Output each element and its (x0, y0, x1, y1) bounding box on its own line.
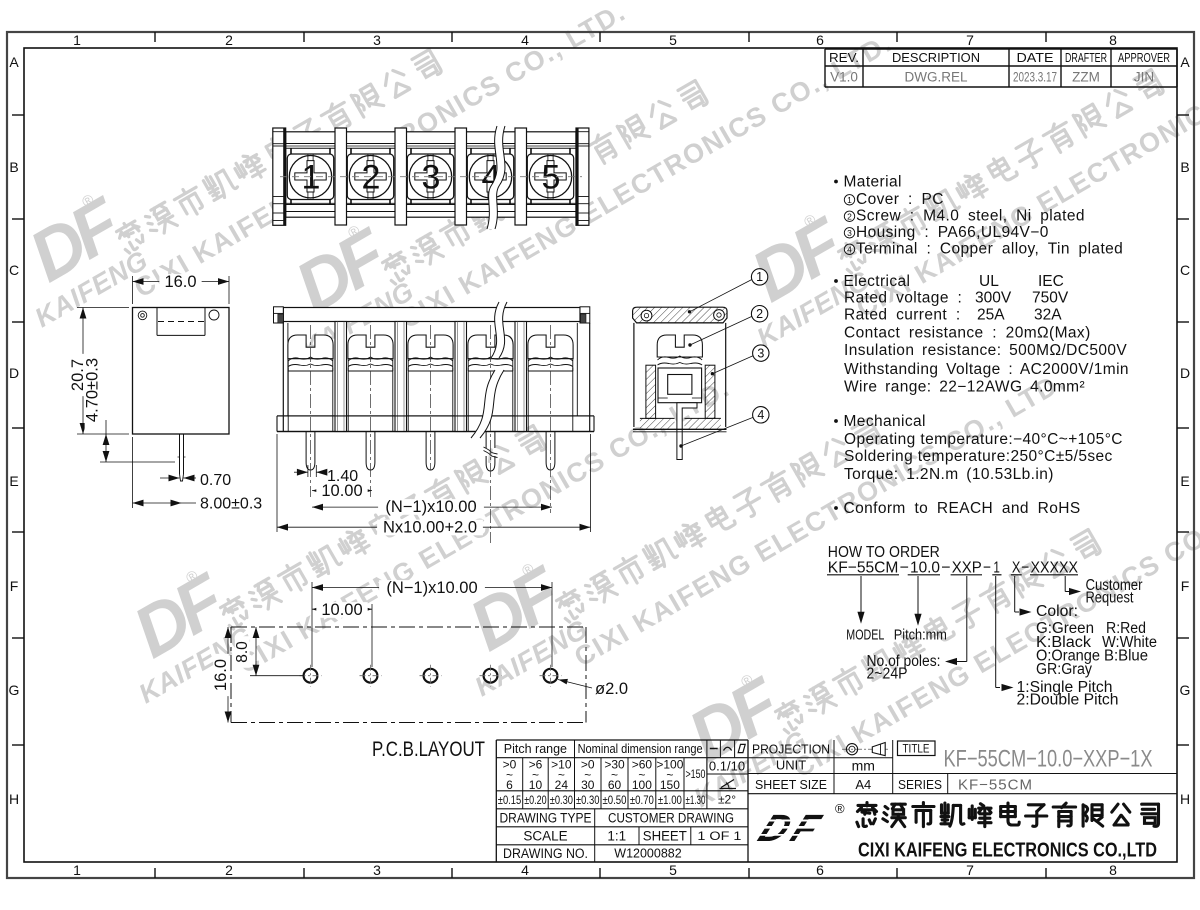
svg-text:Torque: 1.2N.m (10.53Lb.in): Torque: 1.2N.m (10.53Lb.in) (844, 466, 1054, 483)
svg-text:6: 6 (816, 862, 824, 878)
svg-text:KF−55CM−10.0−XXP−1X: KF−55CM−10.0−XXP−1X (944, 746, 1153, 773)
svg-text:Contact resistance : 20mΩ(Max): Contact resistance : 20mΩ(Max) (844, 325, 1091, 342)
svg-text:A: A (1180, 54, 1190, 70)
svg-text:Rated current :: Rated current : (844, 307, 961, 324)
svg-text:5: 5 (542, 159, 561, 197)
svg-text:IEC: IEC (1038, 273, 1064, 290)
svg-text:16.0: 16.0 (164, 273, 196, 291)
svg-text:2~24P: 2~24P (867, 666, 908, 683)
svg-text:10.00: 10.00 (321, 482, 362, 500)
svg-text:Soldering temperature:250°C±5/: Soldering temperature:250°C±5/5sec (844, 448, 1113, 465)
svg-text:3: 3 (847, 228, 852, 238)
svg-text:G: G (1180, 682, 1191, 698)
svg-text:3: 3 (422, 159, 441, 197)
svg-text:4: 4 (847, 245, 852, 255)
svg-text:B:Blue: B:Blue (1104, 648, 1148, 665)
svg-text:5: 5 (669, 862, 677, 878)
svg-text:DWG.REL: DWG.REL (904, 70, 967, 85)
svg-text:4.70±0.3: 4.70±0.3 (84, 358, 102, 422)
svg-text:Electrical: Electrical (844, 273, 911, 290)
svg-text:(N−1)x10.00: (N−1)x10.00 (385, 498, 476, 516)
svg-text:Color:: Color: (1036, 603, 1078, 620)
svg-text:3: 3 (373, 862, 381, 878)
svg-text:Rated voltage :: Rated voltage : (844, 290, 962, 307)
svg-text:±0.15: ±0.15 (498, 793, 522, 807)
svg-text:(N−1)x10.00: (N−1)x10.00 (386, 579, 477, 597)
svg-text:3: 3 (757, 346, 764, 360)
svg-text:C: C (1180, 262, 1190, 278)
svg-text:1: 1 (73, 32, 81, 48)
svg-text:UL: UL (979, 273, 999, 290)
svg-text:Request: Request (1086, 590, 1135, 607)
svg-text:XXP: XXP (952, 560, 982, 577)
svg-text:JIN: JIN (1134, 70, 1154, 85)
svg-text:H: H (1180, 791, 1190, 807)
svg-text:100: 100 (632, 778, 652, 792)
svg-text:DRAWING TYPE: DRAWING TYPE (500, 811, 592, 826)
svg-text:Wire range: 22−12AWG 4.0mm²: Wire range: 22−12AWG 4.0mm² (844, 379, 1085, 396)
svg-text:32A: 32A (1034, 307, 1062, 324)
svg-text:V1.0: V1.0 (830, 70, 858, 85)
svg-text:30: 30 (581, 778, 595, 792)
svg-text:−: − (983, 560, 991, 577)
svg-text:DRAWING NO.: DRAWING NO. (503, 846, 588, 861)
svg-text:Nx10.00+2.0: Nx10.00+2.0 (383, 519, 477, 537)
svg-text:®: ® (835, 801, 845, 816)
svg-text:ø2.0: ø2.0 (595, 680, 628, 698)
svg-text:8: 8 (1109, 32, 1117, 48)
svg-text:SHEET: SHEET (643, 829, 687, 844)
svg-text:1 OF 1: 1 OF 1 (697, 829, 741, 843)
svg-text:±0.50: ±0.50 (603, 793, 627, 807)
svg-text:±0.20: ±0.20 (524, 793, 547, 807)
svg-text:10.0: 10.0 (910, 560, 940, 577)
svg-text:REV.: REV. (829, 51, 859, 65)
svg-text:5: 5 (669, 32, 677, 48)
svg-text:150: 150 (660, 778, 680, 792)
svg-text:A4: A4 (855, 777, 871, 792)
svg-text:8.0: 8.0 (234, 641, 251, 663)
svg-text:10.00: 10.00 (321, 601, 362, 619)
svg-text:7: 7 (966, 32, 974, 48)
svg-text:0.1/10: 0.1/10 (709, 758, 745, 773)
svg-text:4: 4 (521, 862, 529, 878)
svg-text:KF−55CM: KF−55CM (828, 560, 899, 577)
svg-text:Conform to REACH and RoHS: Conform to REACH and RoHS (844, 500, 1081, 517)
svg-text:±0.30: ±0.30 (576, 793, 600, 807)
svg-text:25A: 25A (977, 307, 1005, 324)
svg-text:Operating temperature:−40°C~+1: Operating temperature:−40°C~+105°C (844, 431, 1123, 448)
svg-text:>150: >150 (685, 767, 705, 781)
svg-text:−: − (1021, 560, 1029, 577)
svg-text:H: H (9, 791, 19, 807)
svg-text:1: 1 (993, 560, 1000, 577)
svg-text:Withstanding Voltage : AC2000V: Withstanding Voltage : AC2000V/1min (844, 361, 1129, 378)
svg-text:DATE: DATE (1017, 51, 1054, 65)
svg-text:G: G (9, 682, 20, 698)
svg-text:1: 1 (847, 195, 852, 205)
svg-text:A: A (9, 54, 19, 70)
svg-text:1: 1 (73, 862, 81, 878)
svg-text:MODEL: MODEL (846, 627, 884, 644)
svg-text:±2°: ±2° (718, 793, 736, 807)
svg-text:E: E (1180, 473, 1189, 489)
svg-text:F: F (10, 578, 19, 594)
svg-text:mm: mm (852, 758, 875, 774)
svg-text:4: 4 (521, 32, 529, 48)
svg-text:1: 1 (302, 159, 321, 197)
svg-text:KF−55CM: KF−55CM (958, 776, 1033, 793)
svg-text:XXXXX: XXXXX (1031, 560, 1079, 577)
svg-text:2: 2 (362, 159, 381, 197)
svg-text:±0.70: ±0.70 (630, 793, 654, 807)
svg-text:24: 24 (555, 778, 569, 792)
svg-text:D: D (9, 365, 19, 381)
svg-text:300V: 300V (975, 290, 1012, 307)
svg-text:±0.30: ±0.30 (550, 793, 574, 807)
svg-text:Mechanical: Mechanical (844, 413, 926, 430)
svg-text:2023.3.17: 2023.3.17 (1013, 70, 1057, 85)
svg-text:6: 6 (506, 778, 513, 792)
svg-text:2: 2 (225, 32, 233, 48)
svg-text:TITLE: TITLE (903, 742, 930, 756)
svg-text:±1.30: ±1.30 (686, 793, 706, 807)
svg-text:B: B (1180, 159, 1189, 175)
svg-text:−: − (941, 560, 950, 577)
svg-text:6: 6 (816, 32, 824, 48)
svg-text:−: − (900, 560, 909, 577)
svg-text:Cover : PC: Cover : PC (856, 191, 944, 208)
svg-text:Pitch:mm: Pitch:mm (894, 627, 947, 644)
svg-text:Terminal : Copper alloy, Tin p: Terminal : Copper alloy, Tin plated (856, 241, 1123, 258)
svg-text:E: E (9, 473, 18, 489)
svg-text:Screw : M4.0 steel, Ni plated: Screw : M4.0 steel, Ni plated (856, 208, 1085, 225)
svg-text:Nominal dimension range: Nominal dimension range (578, 742, 703, 756)
svg-text:0.70: 0.70 (200, 472, 231, 489)
svg-text:ZZM: ZZM (1072, 70, 1100, 85)
svg-text:SERIES: SERIES (898, 777, 942, 792)
svg-text:DESCRIPTION: DESCRIPTION (892, 51, 980, 65)
svg-text:8: 8 (1109, 862, 1117, 878)
svg-text:Material: Material (844, 174, 902, 191)
svg-text:4: 4 (757, 408, 764, 422)
svg-text:SHEET SIZE: SHEET SIZE (755, 777, 827, 792)
svg-text:10: 10 (529, 778, 543, 792)
svg-text:CUSTOMER DRAWING: CUSTOMER DRAWING (608, 811, 734, 826)
svg-text:Insulation resistance: 500MΩ/D: Insulation resistance: 500MΩ/DC500V (844, 342, 1127, 359)
svg-text:CIXI KAIFENG ELECTRONICS CO.,L: CIXI KAIFENG ELECTRONICS CO.,LTD (858, 840, 1157, 862)
svg-text:16.0: 16.0 (212, 659, 230, 691)
svg-text:F: F (1181, 578, 1190, 594)
svg-text:3: 3 (373, 32, 381, 48)
svg-text:B: B (9, 159, 18, 175)
svg-text:1:1: 1:1 (607, 829, 626, 844)
svg-text:PROJECTION: PROJECTION (752, 742, 830, 757)
svg-text:2: 2 (225, 862, 233, 878)
svg-text:APPROVER: APPROVER (1118, 51, 1170, 65)
svg-text:2: 2 (847, 212, 852, 222)
svg-text:750V: 750V (1032, 290, 1069, 307)
svg-text:D: D (1180, 365, 1190, 381)
svg-text:HOW TO ORDER: HOW TO ORDER (828, 544, 940, 561)
svg-text:X: X (1012, 560, 1021, 577)
svg-text:P.C.B.LAYOUT: P.C.B.LAYOUT (372, 738, 485, 761)
svg-text:UNIT: UNIT (776, 758, 806, 773)
svg-text:C: C (9, 262, 19, 278)
svg-text:2:Double Pitch: 2:Double Pitch (1017, 692, 1119, 709)
svg-text:GR:Gray: GR:Gray (1036, 661, 1092, 678)
svg-text:W12000882: W12000882 (614, 847, 681, 861)
svg-text:1: 1 (756, 270, 763, 284)
svg-text:±1.00: ±1.00 (658, 793, 682, 807)
svg-text:7: 7 (966, 862, 974, 878)
svg-text:SCALE: SCALE (523, 829, 567, 844)
svg-text:Housing : PA66,UL94V−0: Housing : PA66,UL94V−0 (856, 224, 1049, 241)
svg-text:Pitch range: Pitch range (504, 742, 567, 756)
svg-text:2: 2 (756, 307, 763, 321)
svg-text:8.00±0.3: 8.00±0.3 (200, 496, 262, 513)
svg-text:DRAFTER: DRAFTER (1065, 51, 1107, 65)
svg-text:60: 60 (608, 778, 622, 792)
